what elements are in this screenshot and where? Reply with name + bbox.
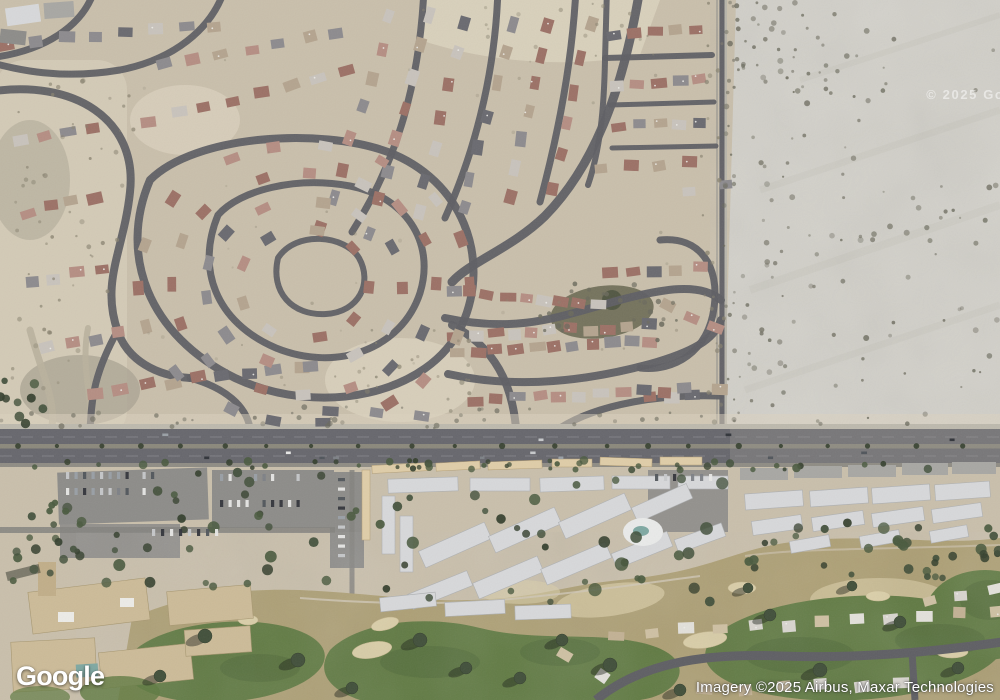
map-canvas[interactable]: © 2025 Goo Google Imagery ©2025 Airbus, … — [0, 0, 1000, 700]
satellite-imagery — [0, 0, 1000, 700]
google-logo[interactable]: Google — [16, 661, 104, 692]
grain-overlay — [0, 0, 1000, 700]
copyright-watermark: © 2025 Goo — [926, 87, 1000, 102]
imagery-attribution: Imagery ©2025 Airbus, Maxar Technologies — [696, 679, 994, 696]
